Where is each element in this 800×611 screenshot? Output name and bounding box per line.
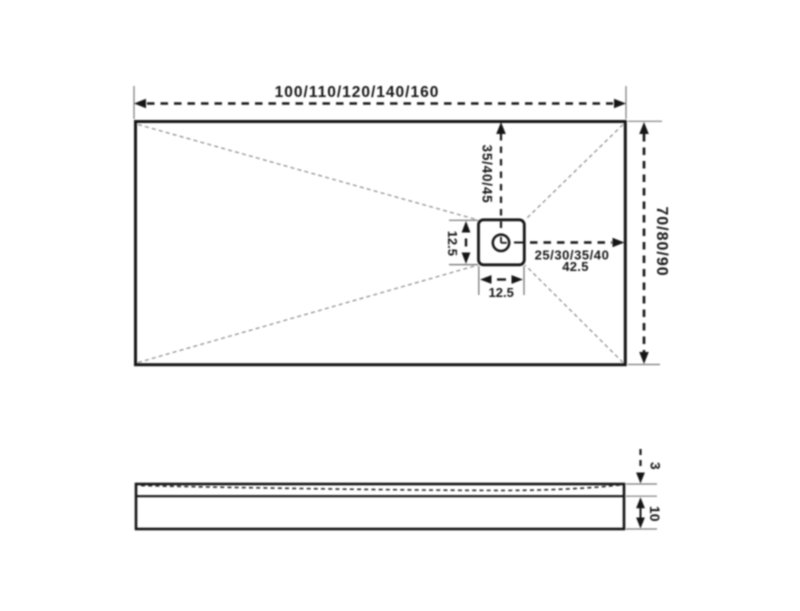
svg-text:42.5: 42.5: [562, 259, 589, 274]
svg-text:12.5: 12.5: [445, 231, 460, 256]
svg-text:12.5: 12.5: [489, 285, 514, 300]
svg-text:10: 10: [647, 506, 663, 522]
svg-text:70/80/90: 70/80/90: [653, 206, 670, 276]
svg-text:100/110/120/140/160: 100/110/120/140/160: [275, 84, 440, 101]
svg-text:35/40/45: 35/40/45: [480, 145, 495, 204]
svg-text:3: 3: [648, 462, 664, 470]
